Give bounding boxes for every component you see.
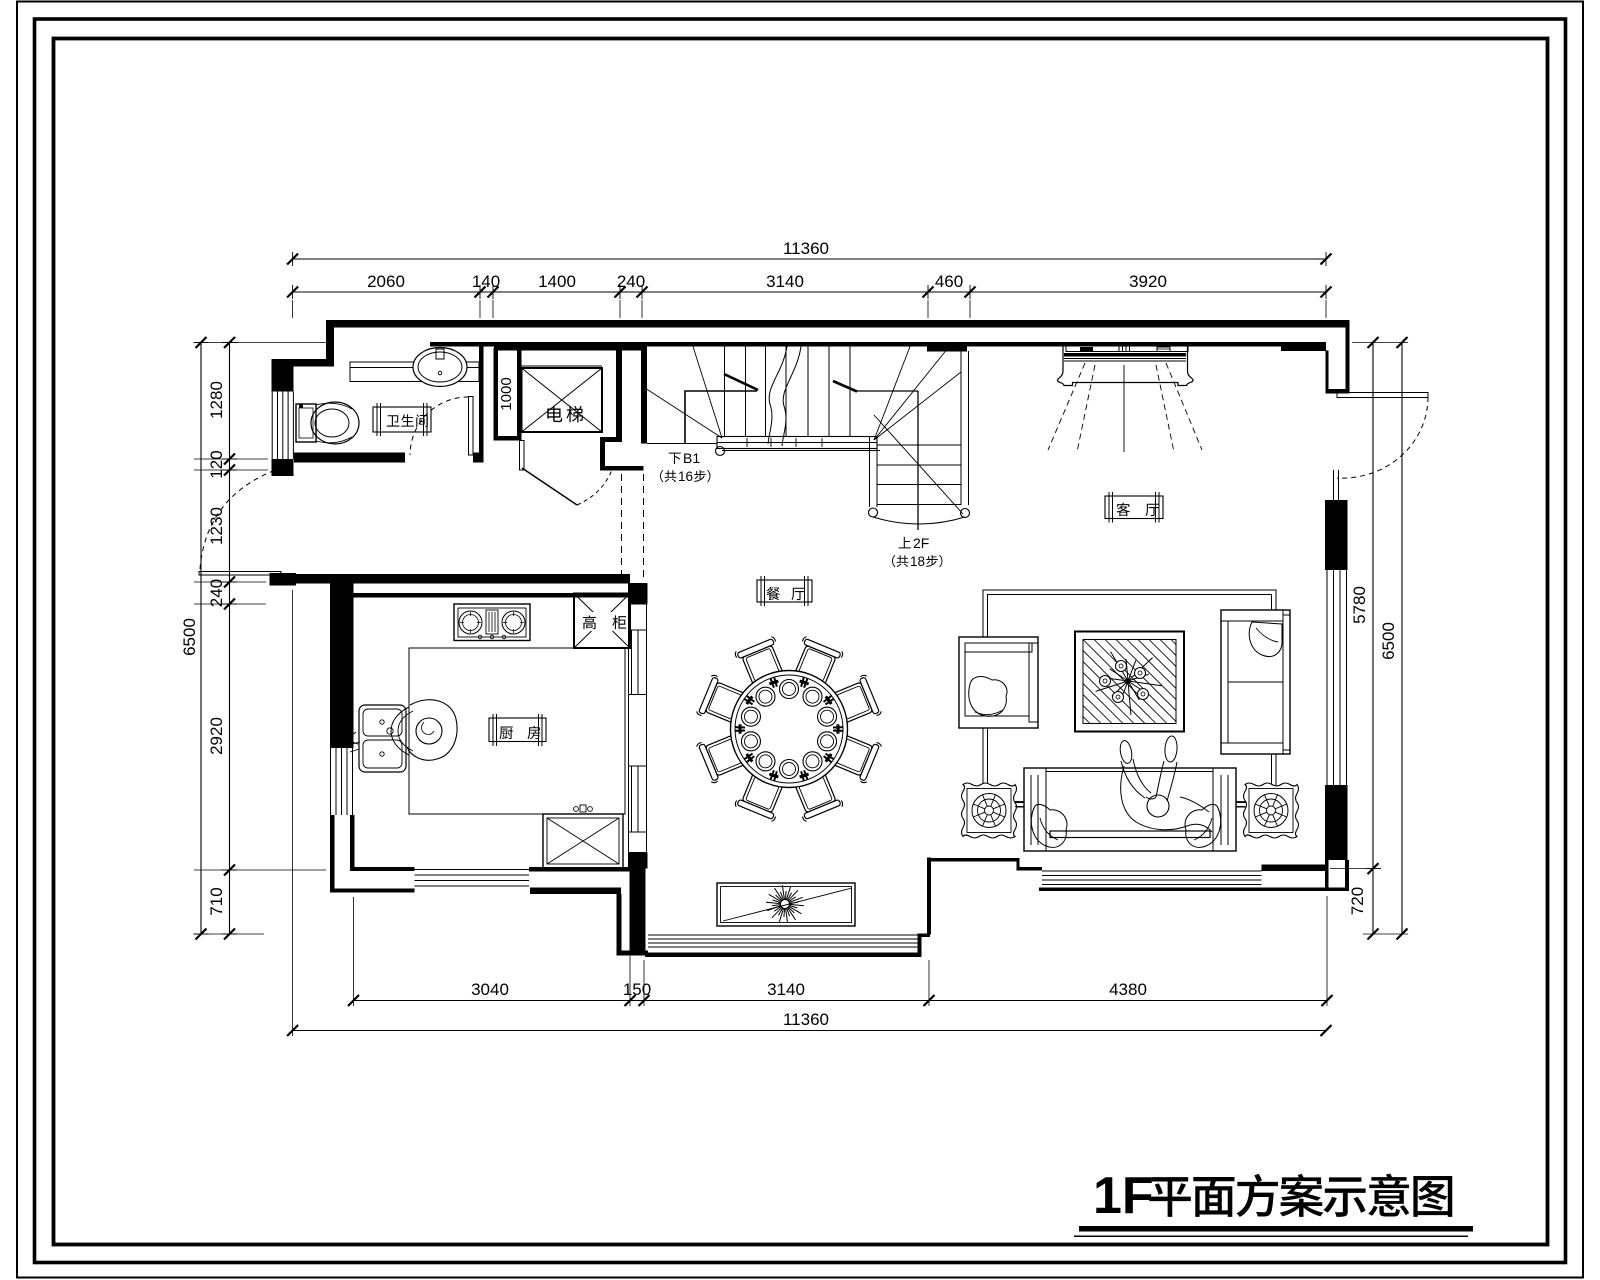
svg-text:3140: 3140 xyxy=(767,980,805,999)
svg-text:1000: 1000 xyxy=(498,377,515,410)
svg-text:240: 240 xyxy=(207,579,226,607)
svg-text:5780: 5780 xyxy=(1350,586,1369,624)
svg-text:3040: 3040 xyxy=(471,980,509,999)
svg-text:1400: 1400 xyxy=(538,272,576,291)
svg-text:140: 140 xyxy=(472,272,500,291)
svg-text:720: 720 xyxy=(1348,887,1367,915)
svg-text:120: 120 xyxy=(207,450,226,478)
svg-text:460: 460 xyxy=(935,272,963,291)
svg-text:710: 710 xyxy=(207,887,226,915)
svg-text:1230: 1230 xyxy=(207,507,226,545)
svg-text:6500: 6500 xyxy=(180,618,199,656)
svg-text:1F: 1F xyxy=(1093,1167,1154,1225)
svg-text:240: 240 xyxy=(617,272,645,291)
svg-text:150: 150 xyxy=(623,980,651,999)
svg-text:4380: 4380 xyxy=(1109,980,1147,999)
svg-text:2920: 2920 xyxy=(207,717,226,755)
svg-text:18: 18 xyxy=(910,554,925,569)
svg-text:3920: 3920 xyxy=(1129,272,1167,291)
svg-text:3140: 3140 xyxy=(766,272,804,291)
svg-text:B1: B1 xyxy=(683,450,700,466)
svg-text:11360: 11360 xyxy=(783,239,829,258)
svg-text:1280: 1280 xyxy=(207,381,226,419)
svg-text:16: 16 xyxy=(678,469,693,484)
svg-text:11360: 11360 xyxy=(783,1010,829,1029)
svg-text:2060: 2060 xyxy=(367,272,405,291)
svg-text:2F: 2F xyxy=(913,535,929,551)
svg-text:6500: 6500 xyxy=(1379,622,1398,660)
